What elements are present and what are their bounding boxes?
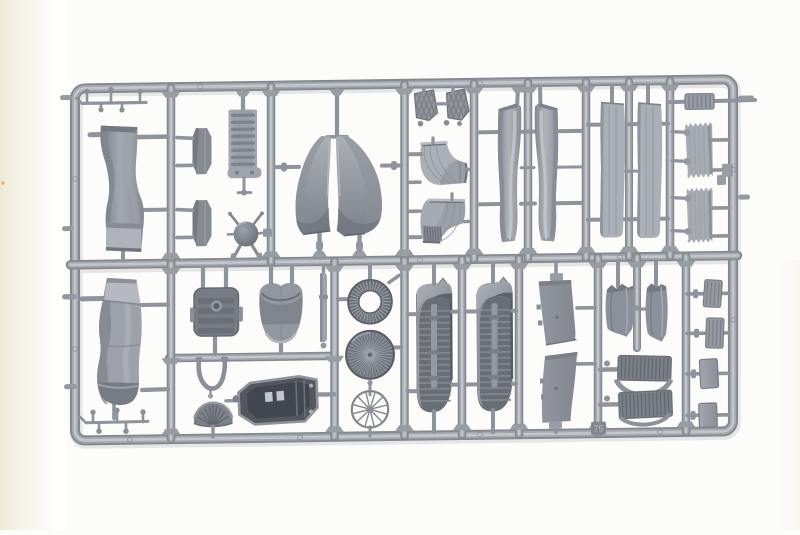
svg-text:75: 75 — [593, 424, 603, 434]
